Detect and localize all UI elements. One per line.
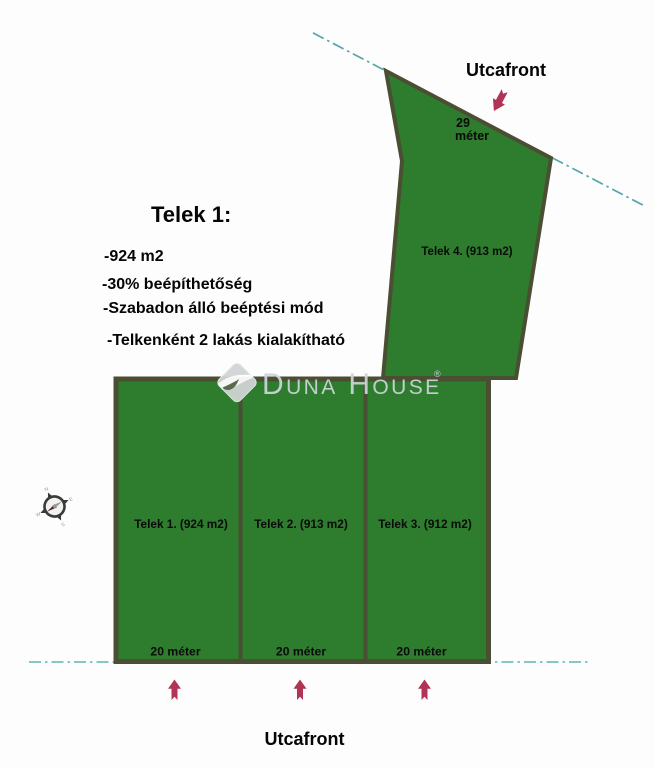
- svg-text:-Telkenként 2 lakás kialakítha: -Telkenként 2 lakás kialakítható: [107, 332, 345, 349]
- svg-text:20 méter: 20 méter: [150, 645, 200, 659]
- svg-text:-924 m2: -924 m2: [104, 248, 164, 265]
- svg-text:®: ®: [434, 369, 441, 379]
- svg-text:Telek 2. (913 m2): Telek 2. (913 m2): [254, 517, 348, 531]
- svg-text:Telek 3. (912 m2): Telek 3. (912 m2): [378, 517, 472, 531]
- svg-text:-Szabadon álló beéptési mód: -Szabadon álló beéptési mód: [103, 300, 323, 317]
- svg-text:29: 29: [456, 116, 470, 130]
- svg-text:20 méter: 20 méter: [396, 645, 446, 659]
- svg-text:Telek 1. (924 m2): Telek 1. (924 m2): [134, 517, 228, 531]
- svg-text:Telek 4. (913 m2): Telek 4. (913 m2): [421, 246, 512, 258]
- svg-text:Telek 1:: Telek 1:: [151, 202, 231, 227]
- svg-text:-30% beépíthetőség: -30% beépíthetőség: [102, 276, 252, 293]
- svg-text:Duna House: Duna House: [262, 368, 442, 401]
- svg-text:20 méter: 20 méter: [276, 645, 326, 659]
- svg-text:Utcafront: Utcafront: [466, 60, 546, 80]
- svg-text:méter: méter: [455, 129, 489, 143]
- svg-text:Utcafront: Utcafront: [265, 729, 345, 749]
